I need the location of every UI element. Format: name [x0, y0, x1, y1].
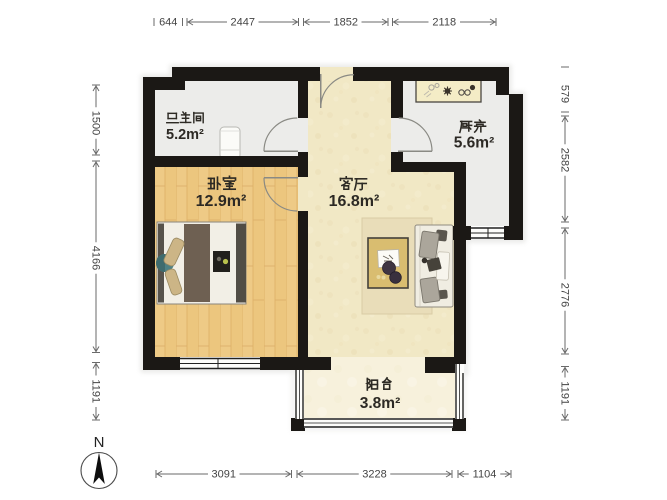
svg-text:5.2m²: 5.2m² [166, 127, 204, 143]
svg-text:1852: 1852 [334, 17, 358, 29]
svg-text:12.9m²: 12.9m² [196, 193, 247, 210]
svg-text:4166: 4166 [90, 246, 102, 270]
svg-text:3.8m²: 3.8m² [360, 395, 401, 412]
svg-text:644: 644 [159, 17, 177, 29]
svg-text:2776: 2776 [559, 283, 571, 307]
svg-text:2118: 2118 [432, 17, 456, 29]
svg-text:1104: 1104 [473, 469, 497, 481]
svg-text:579: 579 [559, 85, 571, 103]
svg-text:1191: 1191 [559, 381, 571, 405]
svg-text:3228: 3228 [362, 469, 386, 481]
svg-text:2582: 2582 [559, 148, 571, 172]
svg-text:5.6m²: 5.6m² [454, 135, 495, 152]
svg-text:2447: 2447 [231, 17, 255, 29]
svg-text:N: N [94, 434, 105, 451]
svg-text:3091: 3091 [212, 469, 236, 481]
svg-text:16.8m²: 16.8m² [329, 193, 380, 210]
svg-text:1500: 1500 [90, 111, 102, 135]
svg-text:1191: 1191 [90, 379, 102, 403]
